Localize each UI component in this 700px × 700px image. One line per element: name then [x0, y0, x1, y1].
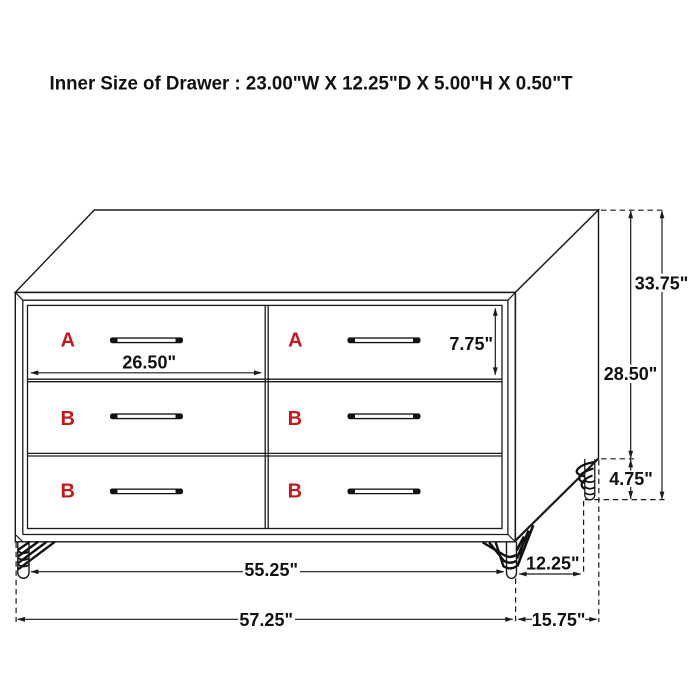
svg-text:Inner Size of Drawer : 23.00"W: Inner Size of Drawer : 23.00"W X 12.25"D… — [50, 74, 573, 95]
svg-text:A: A — [61, 329, 75, 351]
svg-text:15.75": 15.75" — [532, 610, 586, 630]
svg-text:12.25": 12.25" — [526, 554, 580, 574]
svg-text:4.75": 4.75" — [609, 469, 653, 489]
svg-text:7.75": 7.75" — [449, 334, 493, 354]
svg-text:26.50": 26.50" — [122, 353, 176, 373]
svg-text:55.25": 55.25" — [244, 560, 298, 580]
svg-text:B: B — [288, 481, 302, 503]
svg-text:A: A — [288, 329, 302, 351]
svg-text:33.75": 33.75" — [635, 274, 689, 294]
svg-text:57.25": 57.25" — [239, 610, 293, 630]
svg-text:B: B — [60, 481, 74, 503]
svg-text:28.50": 28.50" — [604, 364, 658, 384]
svg-text:B: B — [60, 408, 74, 430]
svg-text:B: B — [288, 408, 302, 430]
